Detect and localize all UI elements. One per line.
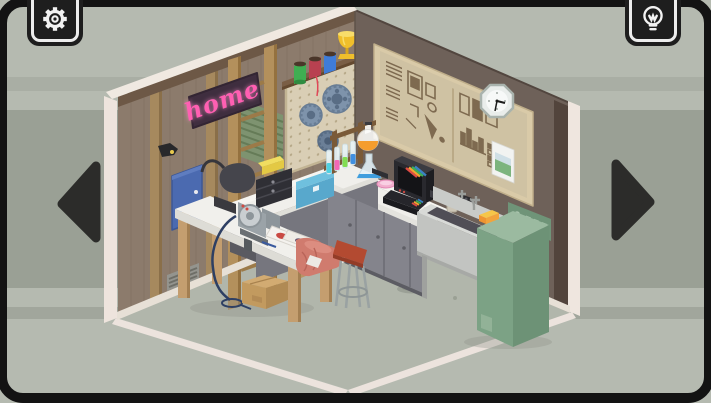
arrow-left-icon	[52, 152, 108, 252]
door-jamb	[554, 100, 568, 310]
fuse-box-latch	[194, 190, 198, 194]
settings-button-border	[31, 0, 79, 42]
washing-machine[interactable]	[477, 202, 551, 347]
wall-clock[interactable]	[481, 85, 513, 117]
film-reel[interactable]	[323, 85, 351, 113]
film-reel[interactable]	[300, 104, 322, 126]
lightbulb-icon	[639, 4, 667, 34]
settings-button[interactable]	[27, 0, 83, 46]
game-screen: { "hud": { "settings_button": { "icon": …	[0, 0, 711, 400]
thread-spool-green[interactable]	[294, 62, 306, 85]
cut-edge-right	[568, 101, 580, 316]
hint-button-border	[629, 0, 677, 42]
pink-bowl[interactable]	[377, 180, 395, 188]
nav-right-button[interactable]	[604, 150, 660, 250]
hint-button[interactable]	[625, 0, 681, 46]
gear-icon	[40, 4, 70, 34]
nav-left-button[interactable]	[52, 152, 108, 252]
arrow-right-icon	[604, 150, 660, 250]
